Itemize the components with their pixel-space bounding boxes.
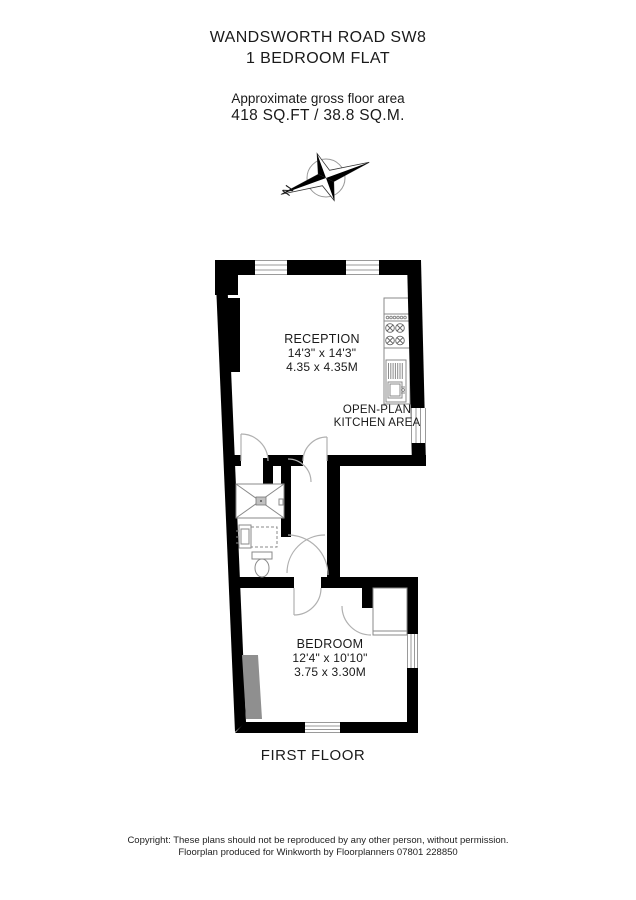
sink-icon [386, 360, 406, 402]
window-bedroom-right [407, 634, 418, 668]
wall-closet-stub [362, 588, 373, 608]
closet [373, 588, 407, 635]
copyright-line1: Copyright: These plans should not be rep… [127, 835, 508, 846]
toilet-icon [252, 552, 272, 577]
reception-imperial: 14'3" x 14'3" [288, 346, 356, 360]
reception-metric: 4.35 x 4.35M [286, 360, 358, 374]
shower-icon [236, 484, 284, 518]
wall-reception-bottom-a [226, 455, 241, 466]
window-top-left [255, 260, 287, 275]
kitchen-label-line1: OPEN-PLAN [343, 404, 411, 416]
compass-rose-icon [272, 138, 377, 217]
wall-bedroom-top-right [321, 577, 418, 588]
door-reception-hall [303, 437, 327, 461]
door-bathroom [288, 535, 328, 575]
bedroom-label: BEDROOM [297, 637, 364, 651]
wall-top [215, 260, 421, 275]
wall-bedroom-top-left [230, 577, 294, 588]
basin-icon [236, 525, 277, 548]
wall-lobby-stub [263, 458, 273, 486]
door-closet [342, 606, 371, 635]
copyright-line2: Floorplan produced for Winkworth by Floo… [178, 847, 457, 858]
door-hall-south [287, 535, 325, 573]
wall-hall-right [327, 455, 340, 588]
door-reception-left [241, 434, 268, 461]
floor-label: FIRST FLOOR [261, 747, 365, 764]
wall-reception-bottom-c [327, 455, 426, 466]
reception-label: RECEPTION [284, 332, 360, 346]
window-top-right [346, 260, 379, 275]
floor-plan-drawing [0, 0, 636, 900]
floorplan-page: WANDSWORTH ROAD SW8 1 BEDROOM FLAT Appro… [0, 0, 636, 900]
window-bedroom-bottom [305, 722, 340, 733]
kitchen-label-line2: KITCHEN AREA [334, 417, 421, 429]
bedroom-metric: 3.75 x 3.30M [294, 665, 366, 679]
bedroom-imperial: 12'4" x 10'10" [292, 651, 367, 665]
kitchen-counter [384, 298, 410, 404]
door-bedroom [294, 588, 321, 615]
